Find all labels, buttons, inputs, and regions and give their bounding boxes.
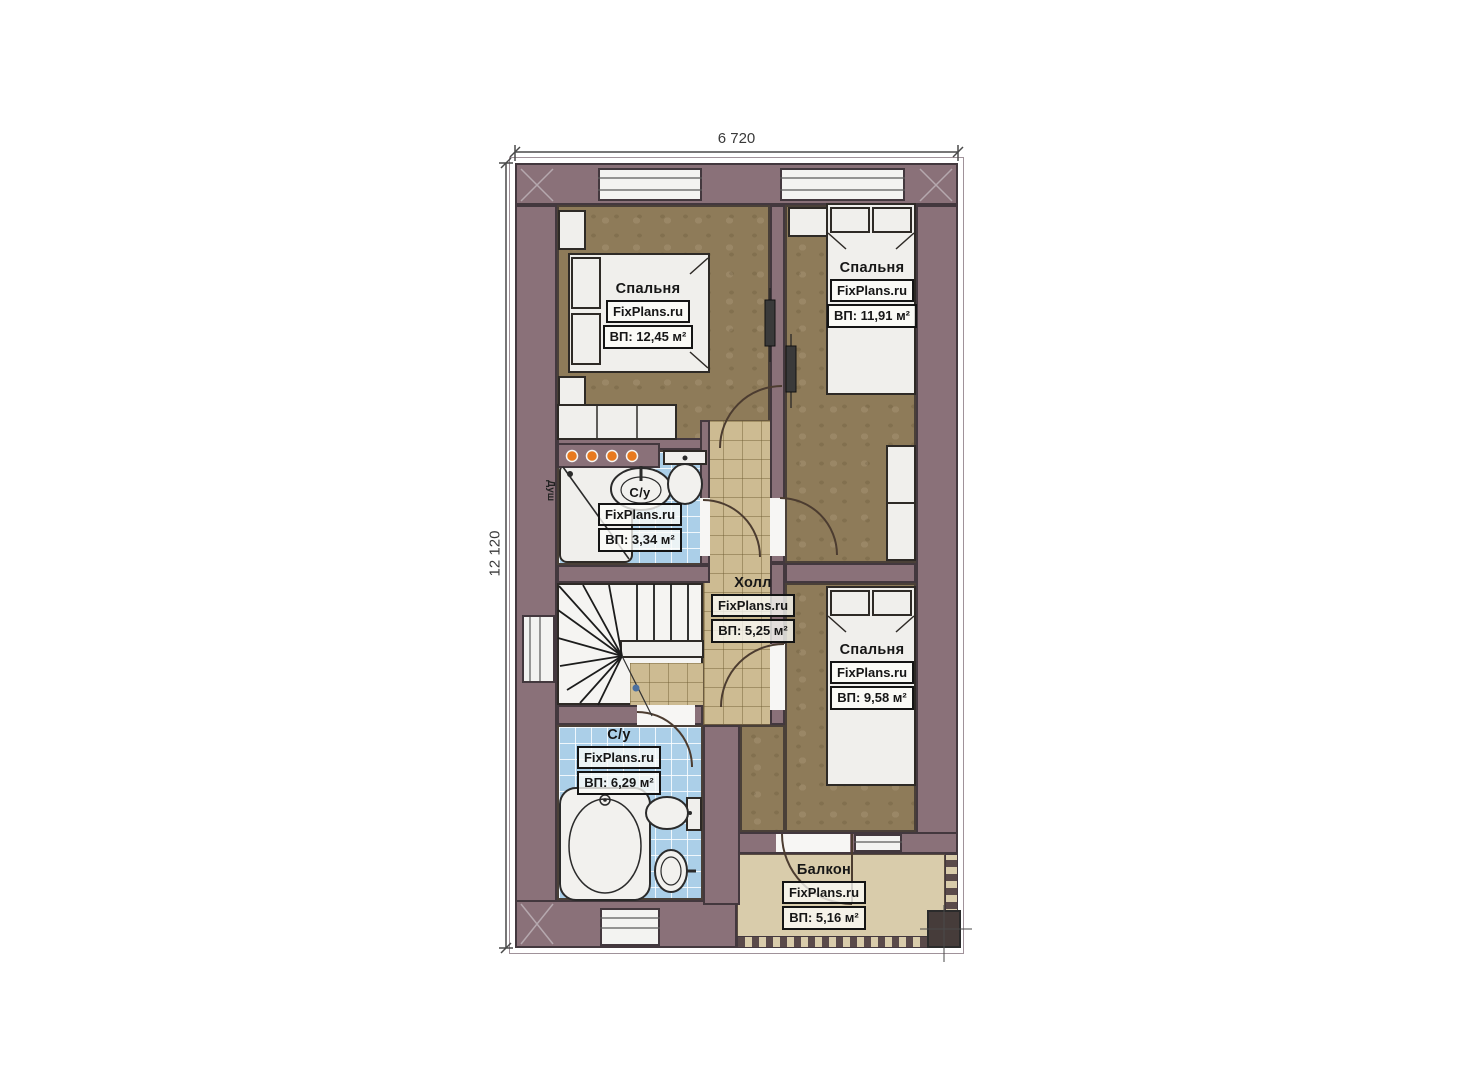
balcony-post <box>927 910 961 948</box>
brand-box: FixPlans.ru <box>606 300 690 324</box>
closet <box>788 207 828 237</box>
room-label-bedroom-top-left: Спальня FixPlans.ru ВП: 12,45 м² <box>586 281 710 349</box>
room-name: Балкон <box>797 862 851 879</box>
area-box: ВП: 11,91 м² <box>827 304 917 328</box>
pillow <box>830 207 870 233</box>
dimension-height-label: 12 120 <box>487 519 504 589</box>
room-name: Холл <box>734 575 772 592</box>
room-label-bathroom-small: С/у FixPlans.ru ВП: 3,34 м² <box>588 486 692 552</box>
window-left <box>522 615 555 683</box>
door-opening-bedroom2 <box>770 498 785 556</box>
wardrobe <box>886 502 916 561</box>
dresser <box>557 404 677 440</box>
floor-bedroom-right-ext <box>740 725 785 832</box>
brand-box: FixPlans.ru <box>782 881 866 905</box>
area-box: ВП: 12,45 м² <box>603 325 694 349</box>
area-box: ВП: 5,16 м² <box>782 906 866 930</box>
brand-box: FixPlans.ru <box>711 594 795 618</box>
window-top-right <box>780 168 905 201</box>
room-label-bedroom-top-right: Спальня FixPlans.ru ВП: 11,91 м² <box>826 260 918 328</box>
wall-left <box>515 205 557 948</box>
area-box: ВП: 5,25 м² <box>711 619 795 643</box>
floor-plan: 6 720 12 120 Спальня FixPlans.ru ВП: 12,… <box>0 0 1473 1080</box>
room-name: Спальня <box>840 260 905 277</box>
room-name: Спальня <box>840 642 905 659</box>
door-opening-bedroom3 <box>770 644 785 710</box>
toilet-tank <box>686 797 702 831</box>
room-name: С/у <box>607 727 630 744</box>
wall-block-southwest <box>703 725 740 905</box>
wall-right <box>916 205 958 854</box>
stairs-landing <box>620 640 704 658</box>
shower-label: Душ <box>545 480 556 501</box>
pillow <box>830 590 870 616</box>
balcony-railing-bottom <box>737 936 959 948</box>
window-balcony <box>854 834 902 852</box>
room-name: Спальня <box>616 281 681 298</box>
room-label-hall: Холл FixPlans.ru ВП: 5,25 м² <box>710 575 796 643</box>
pillow <box>872 207 912 233</box>
nightstand <box>558 210 586 250</box>
door-opening-balcony <box>776 834 850 852</box>
brand-box: FixPlans.ru <box>577 746 661 770</box>
brand-box: FixPlans.ru <box>830 279 914 303</box>
wall-bedroom2-bedroom3 <box>785 563 916 583</box>
door-opening-bath-small <box>700 498 710 556</box>
wall-bath-stairs <box>557 565 710 583</box>
room-name: С/у <box>629 486 650 501</box>
room-label-bedroom-right: Спальня FixPlans.ru ВП: 9,58 м² <box>824 642 920 710</box>
vanity-counter <box>557 443 660 468</box>
room-label-bathroom-large: С/у FixPlans.ru ВП: 6,29 м² <box>570 727 668 795</box>
brand-box: FixPlans.ru <box>830 661 914 685</box>
toilet-tank <box>663 450 707 465</box>
area-box: ВП: 6,29 м² <box>577 771 661 795</box>
door-opening-bath-large <box>637 705 695 725</box>
window-top-left <box>598 168 702 201</box>
dimension-width-label: 6 720 <box>515 130 958 147</box>
floor-hall-under-stairs <box>630 663 703 705</box>
room-label-balcony: Балкон FixPlans.ru ВП: 5,16 м² <box>768 862 880 930</box>
area-box: ВП: 9,58 м² <box>830 686 914 710</box>
area-box: ВП: 3,34 м² <box>598 528 682 552</box>
window-bottom <box>600 908 660 946</box>
brand-box: FixPlans.ru <box>598 503 682 527</box>
wardrobe <box>886 445 916 504</box>
pillow <box>872 590 912 616</box>
